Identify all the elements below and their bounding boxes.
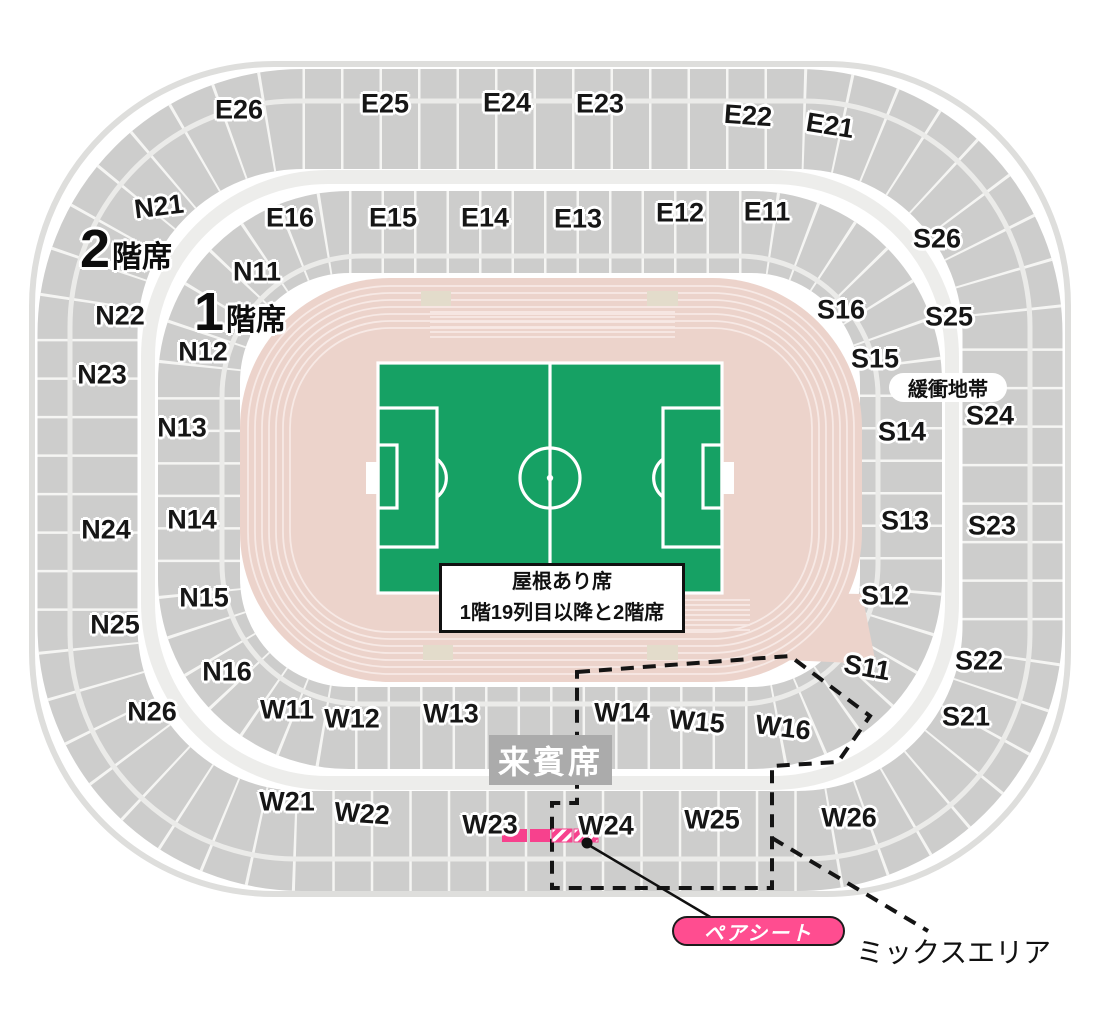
section-label-w21: W21 xyxy=(259,787,315,818)
section-label-s21: S21 xyxy=(942,702,990,733)
section-label-s23: S23 xyxy=(968,511,1016,542)
section-label-s13: S13 xyxy=(881,506,929,537)
roof-note-box: 屋根あり席 1階19列目以降と2階席 xyxy=(439,563,685,633)
section-label-w26: W26 xyxy=(821,803,877,834)
section-label-s16: S16 xyxy=(817,295,865,326)
section-label-s14: S14 xyxy=(878,417,926,448)
section-label-e15: E15 xyxy=(369,203,417,234)
section-label-n16: N16 xyxy=(202,657,252,688)
section-label-w14: W14 xyxy=(594,698,650,729)
section-label-n15: N15 xyxy=(179,583,229,614)
stadium-seating-map: 2 階席 1 階席 E26 E25 E24 E23 E22 E21 E16 E1… xyxy=(0,0,1100,1034)
section-label-e22: E22 xyxy=(723,99,773,133)
tier2-label: 2 階席 xyxy=(80,222,172,276)
left-goal xyxy=(366,462,378,494)
section-label-e25: E25 xyxy=(361,89,409,120)
section-label-e11: E11 xyxy=(744,197,791,228)
section-label-e14: E14 xyxy=(461,203,509,234)
right-goal xyxy=(722,462,734,494)
section-label-w22: W22 xyxy=(333,797,391,832)
section-label-n25: N25 xyxy=(90,610,140,641)
stadium-geometry xyxy=(0,0,1100,1034)
section-label-n13: N13 xyxy=(157,413,207,444)
section-label-n26: N26 xyxy=(127,697,177,728)
section-label-w13: W13 xyxy=(423,699,479,730)
section-label-e12: E12 xyxy=(656,198,704,229)
roof-note-line2: 1階19列目以降と2階席 xyxy=(460,598,665,629)
section-label-w15: W15 xyxy=(668,704,726,740)
section-label-s26: S26 xyxy=(913,224,961,255)
section-label-s25: S25 xyxy=(925,302,973,333)
section-label-w11: W11 xyxy=(260,695,314,726)
soccer-field xyxy=(366,363,734,593)
section-label-n11: N11 xyxy=(233,257,281,288)
section-label-e13: E13 xyxy=(554,204,602,235)
buffer-zone-label: 緩衝地帯 xyxy=(889,373,1007,402)
section-label-e16: E16 xyxy=(266,203,314,234)
section-label-w16: W16 xyxy=(754,709,813,747)
tier1-label: 1 階席 xyxy=(194,285,286,339)
section-label-n24: N24 xyxy=(81,515,131,546)
section-label-s12: S12 xyxy=(861,581,909,612)
section-label-w23: W23 xyxy=(462,810,518,841)
section-label-s22: S22 xyxy=(955,646,1003,677)
section-label-n14: N14 xyxy=(167,505,217,536)
section-label-w25: W25 xyxy=(684,805,740,836)
section-label-s15: S15 xyxy=(851,344,899,375)
roof-note-line1: 屋根あり席 xyxy=(512,567,612,598)
pair-seat-label: ペアシート xyxy=(672,916,845,946)
vip-seats-label: 来賓席 xyxy=(489,735,612,785)
section-label-n23: N23 xyxy=(77,360,127,391)
section-label-n21: N21 xyxy=(133,189,186,226)
section-label-e23: E23 xyxy=(576,89,624,120)
section-label-w24: W24 xyxy=(578,811,634,842)
section-label-e24: E24 xyxy=(483,88,531,119)
section-label-w12: W12 xyxy=(324,704,380,735)
mix-area-label: ミックスエリア xyxy=(856,931,1051,971)
section-label-s24: S24 xyxy=(966,401,1014,432)
section-label-n12: N12 xyxy=(178,337,228,368)
section-label-e26: E26 xyxy=(215,95,263,126)
section-label-n22: N22 xyxy=(95,301,145,332)
